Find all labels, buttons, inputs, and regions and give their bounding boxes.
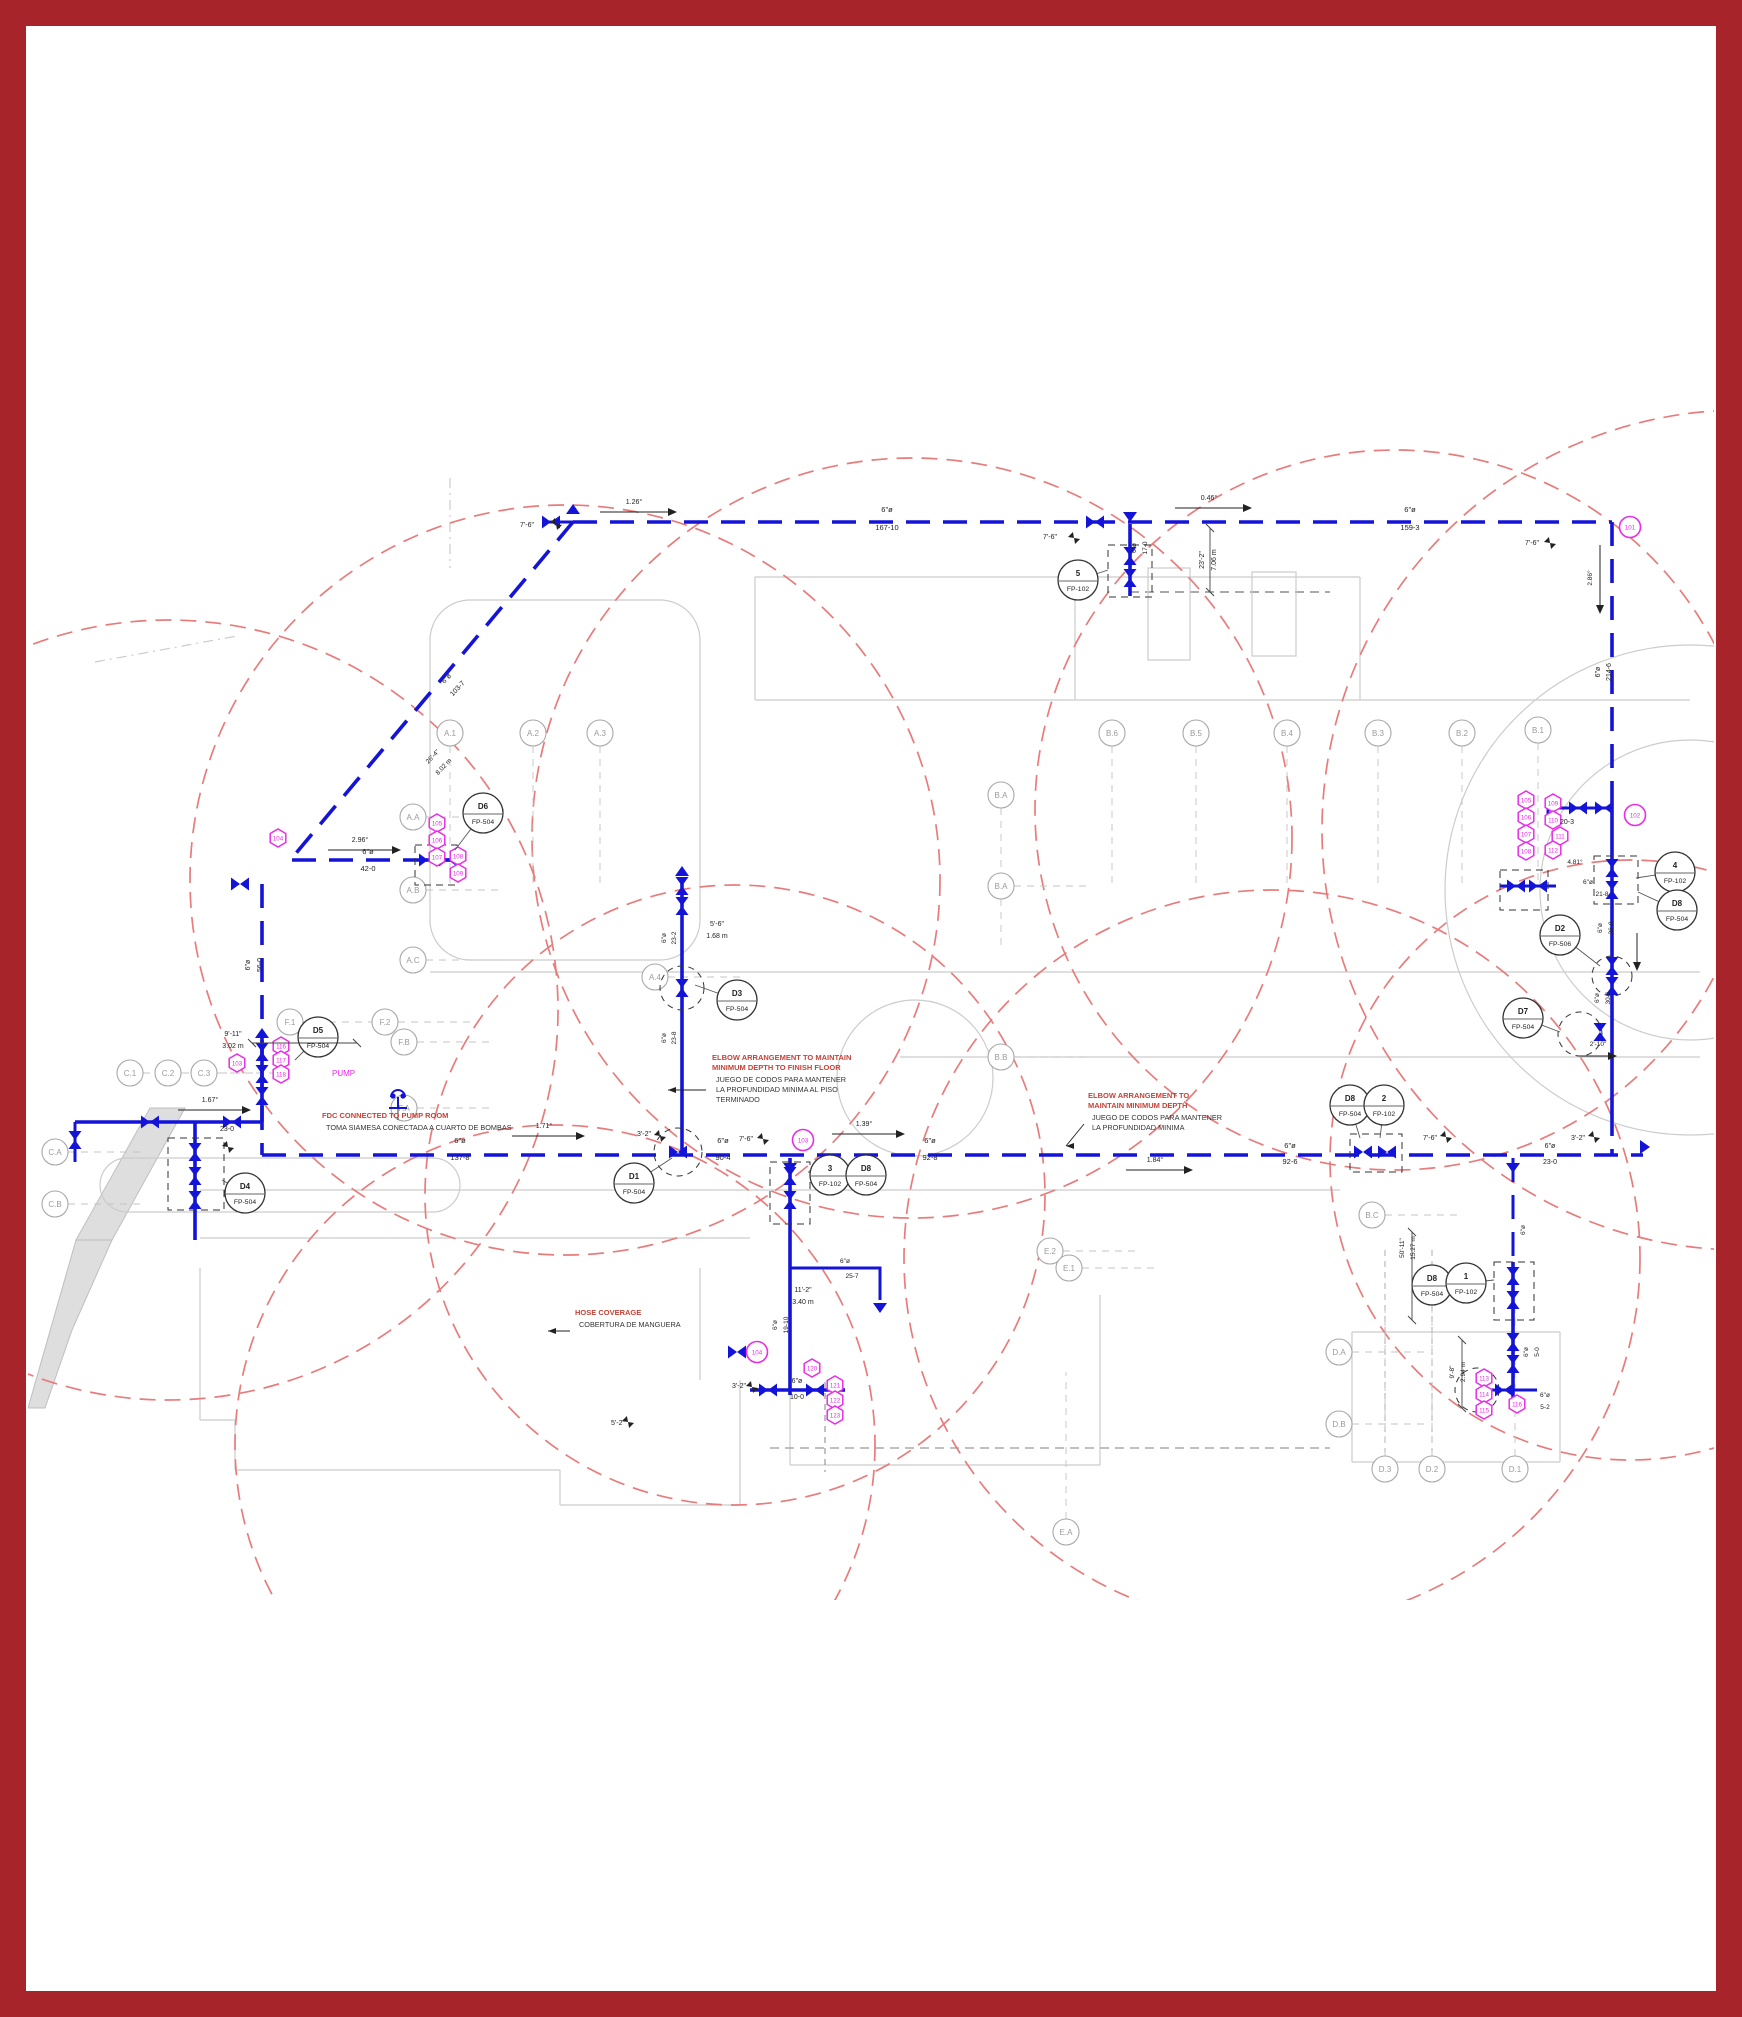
dim-label: 6"ø xyxy=(661,933,668,943)
slope-label: 1.71° xyxy=(536,1122,553,1130)
equipment-tag-system: FP-504 xyxy=(1421,1291,1444,1298)
equipment-tag-system: FP-102 xyxy=(819,1181,842,1188)
grid-bubble-label: A.2 xyxy=(527,729,540,738)
drawing-canvas: A.1A.2A.3B.6B.5B.4B.3B.2B.1A.AA.BA.CA.4B… xyxy=(0,0,1742,2017)
valve-bowtie xyxy=(1507,1333,1520,1351)
valve-bowtie xyxy=(676,897,689,915)
coverage-circle xyxy=(1330,860,1742,1460)
note-black-line: LA PROFUNDIDAD MINIMA AL PISO xyxy=(716,1085,838,1094)
equipment-tag-number: 3 xyxy=(828,1164,833,1173)
grid-bubble-label: E.A xyxy=(1060,1528,1074,1537)
equipment-tag-system: FP-504 xyxy=(726,1006,749,1013)
valve-icon xyxy=(1507,880,1525,893)
flow-arrow-icon xyxy=(255,1028,269,1038)
grid-bubble-label: C.A xyxy=(48,1148,62,1157)
hex-tag-code: 117 xyxy=(276,1057,286,1064)
valve-icon xyxy=(676,979,689,997)
valve-bowtie xyxy=(1569,802,1587,815)
valve-bowtie xyxy=(256,1087,269,1105)
equipment-tag-number: 4 xyxy=(1673,861,1678,870)
valve-bowtie xyxy=(1507,1267,1520,1285)
hex-tag-code: 108 xyxy=(1521,848,1532,855)
grid-bubble-label: B.3 xyxy=(1372,729,1385,738)
dim-label: 6"ø xyxy=(661,1033,668,1043)
equipment-tag-number: 5 xyxy=(1076,569,1081,578)
dim-label: 7'-6" xyxy=(520,522,534,529)
slope-arrowhead-icon xyxy=(1633,962,1641,971)
valve-icon xyxy=(189,1191,202,1209)
valve-icon xyxy=(256,1087,269,1105)
hex-tag-code: 113 xyxy=(1479,1375,1489,1382)
note-black-line: TOMA SIAMESA CONECTADA A CUARTO DE BOMBA… xyxy=(326,1123,512,1132)
grid-bubble-label: A.C xyxy=(406,956,420,965)
grid-bubble-label: B.A xyxy=(995,882,1009,891)
dim-label: 6"ø xyxy=(362,847,374,856)
valve-bowtie xyxy=(69,1131,82,1149)
equipment-tag xyxy=(1503,998,1543,1038)
slope-label: 1.67° xyxy=(202,1096,219,1104)
valve-enclosure-circle xyxy=(1558,1012,1602,1056)
slope-label: 2.96° xyxy=(352,836,369,844)
valve-bowtie xyxy=(1086,516,1104,529)
equipment-tag xyxy=(1058,560,1098,600)
note-arrowhead-icon xyxy=(548,1328,556,1334)
valve-icon xyxy=(1569,802,1587,815)
hex-tag-code: 106 xyxy=(1521,814,1532,821)
valve-bowtie xyxy=(806,1384,824,1397)
dim-label: 167-10 xyxy=(875,523,898,532)
reducer-glyph xyxy=(1544,537,1556,549)
hex-tag-code: 122 xyxy=(830,1397,841,1404)
equipment-tag xyxy=(463,793,503,833)
grid-bubble-label: D.2 xyxy=(1426,1465,1439,1474)
fdc-inlet xyxy=(390,1093,395,1098)
valve-bowtie xyxy=(676,979,689,997)
tag-layer xyxy=(222,517,1697,1425)
magenta-tag-code: 101 xyxy=(1625,524,1636,531)
building-layer xyxy=(28,478,1742,1505)
dim-label: 50'-11" xyxy=(1399,1237,1406,1257)
hex-tag-code: 123 xyxy=(830,1412,841,1419)
grid-bubble-label: F.2 xyxy=(380,1018,391,1027)
building-mass xyxy=(28,1240,112,1408)
equipment-tag xyxy=(1657,890,1697,930)
dim-label: 214-6 xyxy=(1606,663,1613,681)
hex-tag-code: 104 xyxy=(273,835,284,842)
dim-label: 6"ø xyxy=(245,959,252,970)
equipment-tag-number: 1 xyxy=(1464,1272,1469,1281)
note-red-line: MAINTAIN MINIMUM DEPTH xyxy=(1088,1101,1187,1110)
equipment-tag xyxy=(810,1155,850,1195)
valve-bowtie xyxy=(1495,1384,1513,1397)
note-red-line: HOSE COVERAGE xyxy=(575,1308,641,1317)
note-black-line: TERMINADO xyxy=(716,1095,760,1104)
dim-label: 6"ø xyxy=(1284,1141,1296,1150)
hex-tag-code: 105 xyxy=(432,820,443,827)
valve-bowtie xyxy=(1124,569,1137,587)
dim-label: 26'-4" xyxy=(425,748,442,765)
note-red-line: MINIMUM DEPTH TO FINISH FLOOR xyxy=(712,1063,841,1072)
dim-label: 5'-2" xyxy=(611,1420,625,1427)
dim-label: 6"ø xyxy=(1545,1143,1556,1150)
grid-bubble-label: A.4 xyxy=(649,973,662,982)
reducer-icon xyxy=(1588,1131,1600,1143)
dim-label: 6"ø xyxy=(881,505,893,514)
building-outline xyxy=(1148,568,1190,660)
dim-label: 6"ø xyxy=(840,1258,850,1265)
flow-arrow-icon xyxy=(1640,1140,1650,1154)
valve-bowtie xyxy=(189,1143,202,1161)
dim-label: 23'-2" xyxy=(1199,551,1206,569)
grid-bubble-label: A.1 xyxy=(444,729,457,738)
dim-label: 15.27 m xyxy=(1410,1236,1417,1260)
valve-icon xyxy=(1507,1333,1520,1351)
dim-label: 6"ø xyxy=(1131,543,1138,553)
dim-label: 6"ø xyxy=(717,1136,729,1145)
equipment-tag-number: D4 xyxy=(240,1182,251,1191)
dim-label: 2'-10" xyxy=(1590,1041,1607,1048)
equipment-tag-system: FP-102 xyxy=(1067,586,1090,593)
flow-arrow-icon xyxy=(675,866,689,876)
valve-bowtie xyxy=(1507,880,1525,893)
note-red-line: FDC CONNECTED TO PUMP ROOM xyxy=(322,1111,448,1120)
dim-label: 10-0 xyxy=(790,1394,804,1401)
equipment-tag xyxy=(298,1017,338,1057)
grid-bubble-label: F.B xyxy=(398,1038,410,1047)
equipment-tag-number: D1 xyxy=(629,1172,640,1181)
dim-label: 3.02 m xyxy=(222,1043,244,1050)
dim-label: 6"ø xyxy=(441,672,454,685)
dim-label: 23-0 xyxy=(220,1126,234,1133)
valve-icon xyxy=(676,897,689,915)
equipment-tag-number: D5 xyxy=(313,1026,324,1035)
slope-arrowhead-icon xyxy=(896,1130,905,1138)
note-black-line: JUEGO DE CODOS PARA MANTENER xyxy=(1092,1113,1222,1122)
reducer-icon xyxy=(654,1130,666,1142)
valve-bowtie xyxy=(1507,1355,1520,1373)
equipment-tag-system: FP-504 xyxy=(855,1181,878,1188)
dim-label: 7'-6" xyxy=(1525,540,1539,547)
note-black-line: JUEGO DE CODOS PARA MANTENER xyxy=(716,1075,846,1084)
equipment-tag xyxy=(225,1173,265,1213)
reducer-icon xyxy=(757,1133,769,1145)
dim-label: 23-2 xyxy=(671,931,678,944)
dim-label: 7'-6" xyxy=(1043,534,1057,541)
coverage-circle xyxy=(425,885,1045,1505)
equipment-tag-number: 2 xyxy=(1382,1094,1387,1103)
valve-bowtie xyxy=(1595,802,1613,815)
equipment-tag xyxy=(1655,852,1695,892)
equipment-tag-system: FP-506 xyxy=(1549,941,1572,948)
dim-label: 6"ø xyxy=(1583,879,1593,886)
dim-label: 4.81° xyxy=(1567,858,1583,866)
grid-bubble-label: B.5 xyxy=(1190,729,1203,738)
note-red-line: ELBOW ARRANGEMENT TO MAINTAIN xyxy=(712,1053,851,1062)
valve-icon xyxy=(1124,569,1137,587)
equipment-tag xyxy=(1446,1263,1486,1303)
dim-label: 23-8 xyxy=(671,1031,678,1044)
dim-label: 6"ø xyxy=(1523,1347,1530,1357)
grid-bubble-label: C.2 xyxy=(162,1069,175,1078)
valve-bowtie xyxy=(759,1384,777,1397)
dim-label: 36-0 xyxy=(1608,921,1615,934)
slope-arrowhead-icon xyxy=(1243,504,1252,512)
building-outline xyxy=(1252,572,1296,656)
reducer-icon xyxy=(1068,532,1080,544)
dim-label: 5-2 xyxy=(1540,1404,1550,1411)
reducer-glyph xyxy=(757,1133,769,1145)
valve-bowtie xyxy=(256,1065,269,1083)
flow-arrow-icon xyxy=(1506,1163,1520,1173)
building-mass xyxy=(76,1108,185,1240)
dim-label: 6"ø xyxy=(792,1378,803,1385)
note-black-line: LA PROFUNDIDAD MINIMA xyxy=(1092,1123,1185,1132)
building-arc xyxy=(837,1000,993,1156)
reducer-glyph xyxy=(1588,1131,1600,1143)
hex-tag-code: 105 xyxy=(1521,797,1532,804)
magenta-tag-code: 104 xyxy=(752,1349,763,1356)
slope-arrowhead-icon xyxy=(242,1106,251,1114)
dim-label: 6"ø xyxy=(1540,1392,1550,1399)
valve-icon xyxy=(1594,1023,1607,1041)
dim-label: 6"ø xyxy=(1594,993,1601,1003)
equipment-tag-system: FP-504 xyxy=(623,1189,646,1196)
coverage-circle xyxy=(235,1125,875,1765)
magenta-tag-code: 102 xyxy=(1630,812,1641,819)
equipment-tag-system: FP-102 xyxy=(1455,1289,1478,1296)
equipment-tag-system: FP-504 xyxy=(472,819,495,826)
building-line xyxy=(95,636,237,662)
equipment-tag-system: FP-102 xyxy=(1664,878,1687,885)
equipment-tag-number: D6 xyxy=(478,802,489,811)
hex-tag-code: 114 xyxy=(1479,1391,1489,1398)
dim-label: 3'-2" xyxy=(1571,1135,1585,1142)
equipment-tag-system: FP-504 xyxy=(1512,1024,1535,1031)
dim-label: 3'-2" xyxy=(637,1131,651,1138)
dim-label: 25-7 xyxy=(845,1273,858,1280)
grid-bubble-label: B.2 xyxy=(1456,729,1469,738)
slope-arrowhead-icon xyxy=(1184,1166,1193,1174)
dim-label: 6"ø xyxy=(924,1136,936,1145)
dim-label: 11'-2" xyxy=(794,1287,812,1294)
valve-bowtie xyxy=(728,1346,746,1359)
valve-icon xyxy=(189,1167,202,1185)
valve-icon xyxy=(1529,880,1547,893)
dim-label: 3.40 m xyxy=(792,1299,814,1306)
drawing-sheet: A.1A.2A.3B.6B.5B.4B.3B.2B.1A.AA.BA.CA.4B… xyxy=(0,0,1742,2017)
dim-label: 7'-6" xyxy=(739,1136,753,1143)
hex-tag-code: 103 xyxy=(232,1060,243,1067)
grid-bubble-label: A.B xyxy=(407,886,420,895)
valve-bowtie xyxy=(1507,1291,1520,1309)
valve-icon xyxy=(1086,516,1104,529)
note-black-line: COBERTURA DE MANGUERA xyxy=(579,1320,681,1329)
valve-icon xyxy=(1507,1355,1520,1373)
valve-icon xyxy=(676,877,689,895)
equipment-tag-number: D3 xyxy=(732,989,743,998)
reducer-glyph xyxy=(1068,532,1080,544)
hex-tag-code: 121 xyxy=(830,1382,841,1389)
grid-bubble-label: D.3 xyxy=(1379,1465,1392,1474)
reducer-icon xyxy=(1544,537,1556,549)
grid-bubble-label: A.3 xyxy=(594,729,607,738)
valve-icon xyxy=(1507,1267,1520,1285)
grid-bubble-label: D.1 xyxy=(1509,1465,1522,1474)
equipment-tag xyxy=(614,1163,654,1203)
dim-label: 2.94 m xyxy=(1460,1362,1467,1382)
equipment-tag xyxy=(1540,915,1580,955)
equipment-tag-system: FP-102 xyxy=(1373,1111,1396,1118)
dim-label: 9'-8" xyxy=(1449,1365,1456,1379)
dim-label: 92-8 xyxy=(922,1153,937,1162)
hex-tag-code: 109 xyxy=(453,870,464,877)
hex-tag-code: 120 xyxy=(807,1365,818,1372)
dim-label: 21-8 xyxy=(1595,891,1608,898)
grid-bubble-label: D.A xyxy=(1332,1348,1346,1357)
dim-label: 2.86° xyxy=(1586,570,1594,586)
equipment-tag-number: D8 xyxy=(1427,1274,1438,1283)
dim-label: 7.06 m xyxy=(1211,549,1218,571)
slope-label: 1.39° xyxy=(856,1120,873,1128)
equipment-tag-number: D2 xyxy=(1555,924,1566,933)
hex-tag-code: 107 xyxy=(432,854,443,861)
dim-label: 17-0 xyxy=(1142,541,1149,554)
building-outline xyxy=(430,600,700,960)
dim-label: 6"ø xyxy=(1597,923,1604,933)
valve-icon xyxy=(806,1384,824,1397)
dim-label: 7'-6" xyxy=(1423,1135,1437,1142)
dim-label: 5-0 xyxy=(1534,1347,1541,1357)
grid-bubble-label: B.1 xyxy=(1532,726,1545,735)
equipment-tag xyxy=(1364,1085,1404,1125)
dim-label: 1.68 m xyxy=(706,933,728,940)
coverage-circle xyxy=(190,505,940,1255)
dim-label: 103-7 xyxy=(449,680,466,698)
grid-bubble-label: A.A xyxy=(407,813,421,822)
hex-tag-code: 115 xyxy=(1479,1407,1489,1414)
dim-label: 20-3 xyxy=(1560,819,1574,826)
hex-tag-code: 110 xyxy=(1548,817,1558,824)
pipe-run-underground xyxy=(292,522,573,858)
building-arc xyxy=(1540,740,1742,1040)
grid-bubble-label: B.4 xyxy=(1281,729,1294,738)
valve-bowtie xyxy=(1594,1023,1607,1041)
equipment-tag xyxy=(846,1155,886,1195)
note-leader xyxy=(1066,1124,1084,1146)
valve-icon xyxy=(759,1384,777,1397)
hex-tag-code: 118 xyxy=(276,1071,286,1078)
dim-label: 90-4 xyxy=(715,1153,730,1162)
equipment-tag-system: FP-504 xyxy=(234,1199,257,1206)
magenta-tag-code: 103 xyxy=(798,1137,809,1144)
equipment-tag-system: FP-504 xyxy=(307,1043,330,1050)
building-outline xyxy=(100,1158,460,1212)
grid-bubble-label: C.B xyxy=(48,1200,61,1209)
grid-bubble-label: C.1 xyxy=(124,1069,137,1078)
dim-label: 30-6 xyxy=(1605,991,1612,1004)
grid-bubble-label: E.2 xyxy=(1044,1247,1057,1256)
grid-bubble-label: B.B xyxy=(995,1053,1008,1062)
dim-label: 56-0 xyxy=(257,958,264,972)
hex-tag-code: 106 xyxy=(432,837,443,844)
grid-bubble-label: B.6 xyxy=(1106,729,1119,738)
hex-tag-code: 107 xyxy=(1521,831,1532,838)
dim-label: 159-3 xyxy=(1400,523,1419,532)
note-arrowhead-icon xyxy=(668,1087,676,1093)
dim-label: 19-10 xyxy=(783,1316,790,1333)
hex-tag-code: 109 xyxy=(1548,800,1559,807)
slope-label: 0.46° xyxy=(1201,494,1218,502)
grid-bubble-label: C.3 xyxy=(198,1069,211,1078)
equipment-tag-system: FP-504 xyxy=(1666,916,1689,923)
dim-label: 5'-6" xyxy=(710,921,724,928)
hex-tag-code: 112 xyxy=(1548,847,1558,854)
valve-bowtie xyxy=(676,877,689,895)
valve-icon xyxy=(1595,802,1613,815)
hex-tag-code: 116 xyxy=(276,1043,286,1050)
valve-bowtie xyxy=(231,878,249,891)
dim-label: 23-0 xyxy=(1543,1159,1557,1166)
valve-icon xyxy=(69,1131,82,1149)
flow-arrow-icon xyxy=(873,1303,887,1313)
valve-icon xyxy=(1507,1291,1520,1309)
grid-bubble-label: D.B xyxy=(1332,1420,1345,1429)
hex-tag-code: 116 xyxy=(1512,1401,1522,1408)
equipment-tag xyxy=(717,980,757,1020)
slope-arrowhead-icon xyxy=(1596,605,1604,614)
equipment-tag-number: D8 xyxy=(1672,899,1683,908)
grid-bubble-label: B.C xyxy=(1365,1211,1379,1220)
valve-icon xyxy=(231,878,249,891)
hex-tag-code: 108 xyxy=(453,853,464,860)
grid-bubble-label: E.1 xyxy=(1063,1264,1076,1273)
pump-label: PUMP xyxy=(332,1069,355,1078)
reducer-glyph xyxy=(654,1130,666,1142)
dim-label: 137-8 xyxy=(450,1153,469,1162)
slope-arrowhead-icon xyxy=(668,508,677,516)
dim-label: 9'-11" xyxy=(224,1031,242,1038)
equipment-tag-number: D8 xyxy=(861,1164,872,1173)
dim-label: 92-6 xyxy=(1282,1157,1297,1166)
dim-label: 6"ø xyxy=(1520,1225,1527,1235)
valve-icon xyxy=(728,1346,746,1359)
hex-tag-code: 111 xyxy=(1555,833,1565,840)
valve-bowtie xyxy=(189,1167,202,1185)
slope-label: 1.26° xyxy=(626,498,643,506)
note-red-line: ELBOW ARRANGEMENT TO xyxy=(1088,1091,1189,1100)
valve-bowtie xyxy=(256,1043,269,1061)
slope-arrowhead-icon xyxy=(576,1132,585,1140)
equipment-tag-system: FP-504 xyxy=(1339,1111,1362,1118)
dim-label: 3'-2" xyxy=(732,1383,746,1390)
grid-bubble-label: B.A xyxy=(995,791,1009,800)
fdc-inlet xyxy=(400,1093,405,1098)
grid-bubble-label: F.1 xyxy=(285,1018,296,1027)
dim-label: 6"ø xyxy=(772,1320,779,1330)
slope-arrowhead-icon xyxy=(392,846,401,854)
valve-icon xyxy=(256,1065,269,1083)
pipe-run xyxy=(790,1268,880,1300)
dim-label: 6"ø xyxy=(1404,505,1416,514)
valve-icon xyxy=(1495,1384,1513,1397)
dim-label: 42-0 xyxy=(360,864,375,873)
valve-bowtie xyxy=(189,1191,202,1209)
dim-label: 6"ø xyxy=(454,1136,466,1145)
slope-label: 1.84° xyxy=(1147,1156,1164,1164)
valve-icon xyxy=(256,1043,269,1061)
valve-icon xyxy=(189,1143,202,1161)
equipment-tag-number: D7 xyxy=(1518,1007,1529,1016)
